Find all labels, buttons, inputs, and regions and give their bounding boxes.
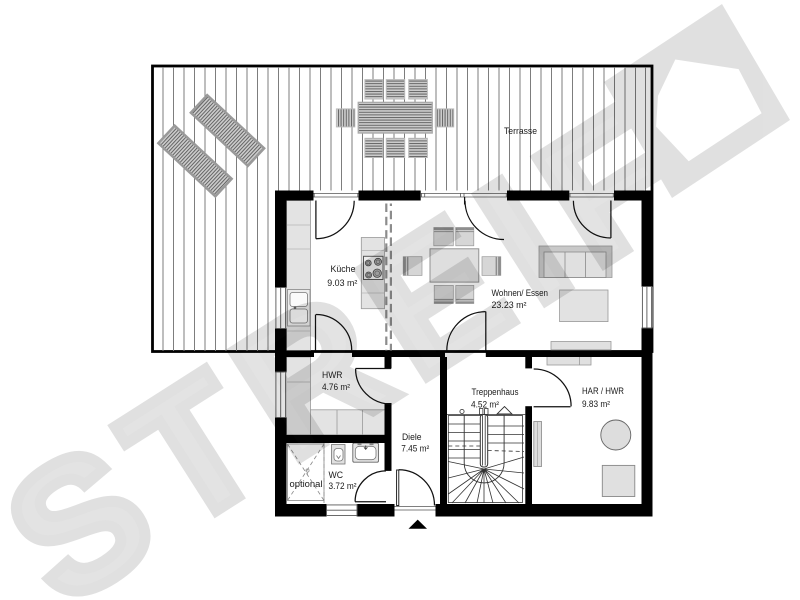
svg-text:7.45 m²: 7.45 m² bbox=[401, 443, 429, 453]
svg-text:HAR / HWR: HAR / HWR bbox=[582, 386, 624, 396]
svg-text:9.83 m²: 9.83 m² bbox=[582, 399, 610, 409]
svg-text:4.52 m²: 4.52 m² bbox=[471, 400, 499, 410]
